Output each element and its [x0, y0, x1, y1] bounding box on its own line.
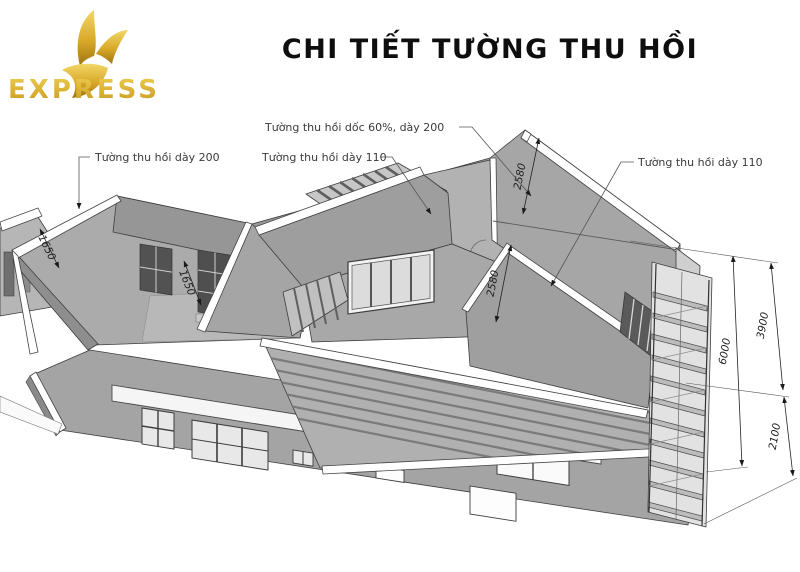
- page-title: CHI TIẾT TƯỜNG THU HỒI: [282, 29, 698, 65]
- drawing-sheet: EXPRESS CHI TIẾT TƯỜNG THU HỒI: [0, 0, 800, 572]
- svg-text:Tường thu hồi dày 110: Tường thu hồi dày 110: [261, 151, 387, 164]
- dimension-2100: 2100: [704, 397, 797, 524]
- svg-text:Tường thu hồi dốc 60%, dày 200: Tường thu hồi dốc 60%, dày 200: [264, 121, 444, 134]
- interior-window: [140, 244, 172, 295]
- label-wall-200: Tường thu hồi dày 200: [79, 151, 220, 209]
- architectural-drawing: EXPRESS CHI TIẾT TƯỜNG THU HỒI: [0, 0, 800, 572]
- express-logo: EXPRESS: [8, 10, 160, 105]
- brand-text: EXPRESS: [8, 75, 160, 105]
- svg-text:Tường thu hồi dày 200: Tường thu hồi dày 200: [94, 151, 220, 164]
- svg-text:Tường thu hồi dày 110: Tường thu hồi dày 110: [637, 156, 763, 169]
- facade-window: [293, 450, 313, 466]
- svg-text:6000: 6000: [717, 337, 734, 366]
- svg-text:2100: 2100: [767, 422, 784, 451]
- svg-text:3900: 3900: [755, 311, 772, 340]
- scaffold: [648, 262, 712, 527]
- facade-window: [142, 408, 174, 449]
